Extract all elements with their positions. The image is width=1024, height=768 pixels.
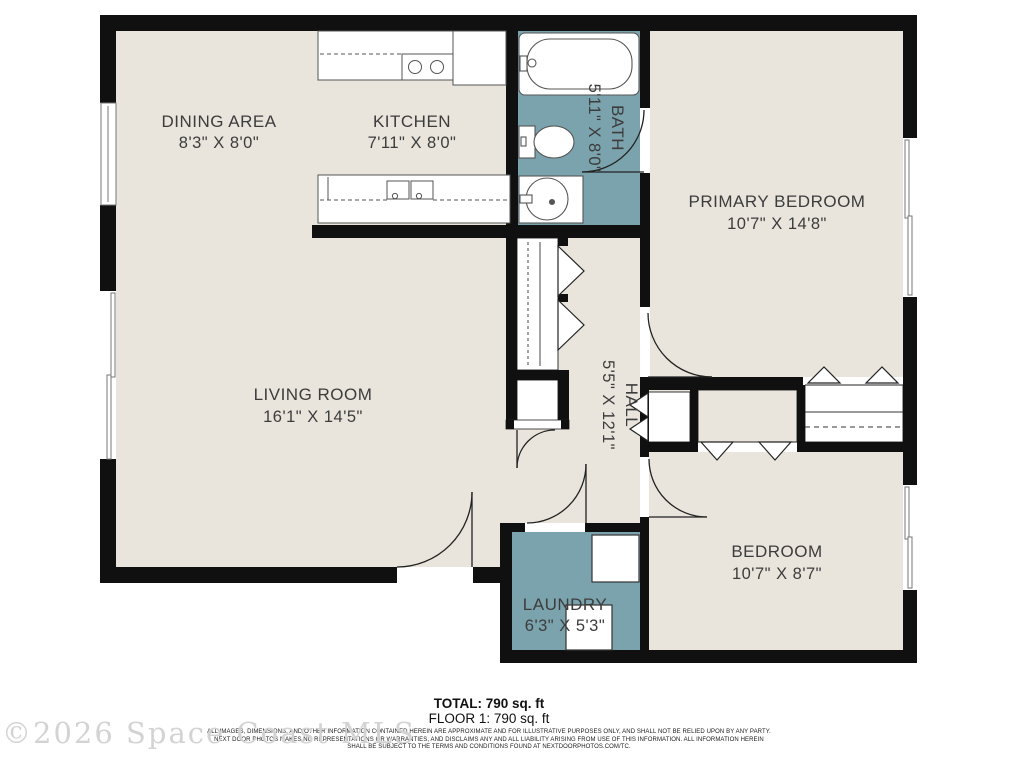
svg-text:HALL: HALL bbox=[622, 383, 641, 428]
bedroom-window bbox=[903, 485, 917, 590]
svg-text:BEDROOM: BEDROOM bbox=[731, 542, 822, 561]
svg-text:5'5" X 12'1": 5'5" X 12'1" bbox=[599, 360, 617, 450]
svg-text:7'11" X 8'0": 7'11" X 8'0" bbox=[368, 134, 457, 152]
svg-text:8'3" X 8'0": 8'3" X 8'0" bbox=[179, 134, 259, 152]
bath-vanity-sink bbox=[519, 176, 583, 223]
fridge bbox=[453, 31, 506, 85]
svg-text:10'7" X 8'7": 10'7" X 8'7" bbox=[732, 565, 822, 583]
svg-text:LIVING ROOM: LIVING ROOM bbox=[254, 385, 373, 404]
total-area-text: TOTAL: 790 sq. ft bbox=[0, 696, 978, 711]
hall-closet-right bbox=[648, 392, 690, 442]
primary-closet bbox=[805, 385, 903, 442]
washer bbox=[592, 535, 639, 582]
svg-text:6'3" X 5'3": 6'3" X 5'3" bbox=[525, 617, 605, 635]
living-window bbox=[100, 291, 116, 459]
svg-text:5'11" X 8'0": 5'11" X 8'0" bbox=[585, 84, 603, 173]
svg-text:PRIMARY BEDROOM: PRIMARY BEDROOM bbox=[689, 192, 866, 211]
svg-text:KITCHEN: KITCHEN bbox=[373, 112, 451, 131]
svg-text:16'1" X 14'5": 16'1" X 14'5" bbox=[263, 408, 363, 426]
svg-text:BATH: BATH bbox=[608, 105, 627, 151]
primary-bedroom-window bbox=[903, 138, 917, 297]
dining-window bbox=[101, 103, 116, 205]
kitchen-counter-bottom bbox=[318, 175, 510, 223]
mls-watermark: ©2026 Space Coast MLS bbox=[2, 716, 416, 750]
stove bbox=[402, 54, 453, 80]
svg-text:10'7" X 14'8": 10'7" X 14'8" bbox=[727, 215, 827, 233]
toilet bbox=[519, 126, 574, 158]
floor-plan-svg: DINING AREA 8'3" X 8'0" KITCHEN 7'11" X … bbox=[0, 0, 1024, 768]
bathtub bbox=[519, 33, 639, 95]
floor-plan-page: DINING AREA 8'3" X 8'0" KITCHEN 7'11" X … bbox=[0, 0, 1024, 768]
svg-text:LAUNDRY: LAUNDRY bbox=[523, 595, 607, 614]
svg-text:DINING AREA: DINING AREA bbox=[161, 112, 276, 131]
linen-shelf bbox=[506, 420, 569, 429]
hall-closet-left bbox=[517, 238, 558, 370]
